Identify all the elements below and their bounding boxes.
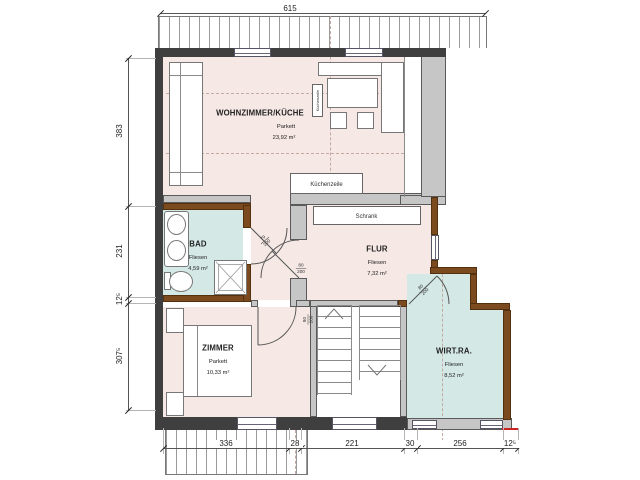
revision-mark <box>502 428 518 430</box>
window <box>431 235 439 260</box>
sofa-armrest-line <box>170 75 202 76</box>
wall <box>163 195 251 203</box>
wall-exterior-bottom <box>277 417 317 430</box>
room-floor-type: Parkett <box>255 123 318 130</box>
dim-label-left: 307⁵ <box>116 341 124 371</box>
window <box>234 48 271 57</box>
room-floor-type: Parkett <box>198 358 239 365</box>
dim-label-top-total: 615 <box>272 5 308 13</box>
schrank-label: Schrank <box>356 212 378 219</box>
room-floor-type: Fliesen <box>176 254 221 261</box>
roof-slope-dashed-line <box>295 430 296 474</box>
room-floor-type: Fliesen <box>357 259 398 266</box>
dim-extension <box>126 410 156 411</box>
balcony-railing <box>165 430 308 475</box>
window <box>480 420 503 429</box>
wall <box>400 300 407 417</box>
room-label-wohnzimmer: WOHNZIMMER/KÜCHE Parkett 23,92 m² <box>185 108 335 143</box>
door-height: 200 <box>296 269 306 274</box>
nightstand <box>166 392 184 416</box>
wall-flur-right <box>431 197 438 235</box>
wall-wirtschaftsraum-right <box>503 310 511 420</box>
wall-exterior-top <box>155 48 234 57</box>
window <box>412 420 437 429</box>
wall <box>251 300 258 307</box>
wall-wirtschaftsraum-step <box>470 303 510 310</box>
wall-wirtschaftsraum-top <box>430 267 477 274</box>
dim-label-bottom: 30 <box>402 440 418 448</box>
window <box>332 417 377 430</box>
dining-table <box>327 78 378 108</box>
kuechenzeile-box: Küchenzeile <box>290 173 363 194</box>
wall-exterior-top <box>383 48 446 57</box>
wall-bad-top <box>163 203 251 210</box>
dim-extension <box>126 206 156 207</box>
dim-label-bottom: 12⁵ <box>498 440 522 448</box>
dim-line-top <box>160 13 486 14</box>
wall <box>290 205 307 240</box>
door-size-zimmer: 80 200 <box>302 314 313 324</box>
schrank-box: Schrank <box>313 206 421 225</box>
kuechenzeile-label: Küchenzeile <box>310 180 342 187</box>
window <box>345 48 383 57</box>
room-name: ZIMMER <box>193 344 243 354</box>
wall-bad-bottom <box>163 295 251 302</box>
stair-flight-right <box>359 305 401 380</box>
room-name: WIRT.RA. <box>429 347 479 357</box>
dim-label-bottom: 256 <box>440 440 480 448</box>
door-height: 200 <box>308 314 313 324</box>
room-area: 4,59 m² <box>176 265 221 272</box>
wall-bad-right <box>243 205 251 228</box>
wall-knee-right <box>421 48 446 197</box>
room-label-wirtschaftsraum: WIRT.RA. Fliesen 8,52 m² <box>422 346 486 381</box>
sofa-back-line <box>180 63 181 185</box>
wall-exterior-bottom <box>317 417 332 430</box>
room-name: FLUR <box>352 245 402 255</box>
roof-hatch-top <box>158 16 487 48</box>
floor-plan: Schrank Küchenzeile Küchenzeile <box>0 0 640 480</box>
vestibule-opening-floor <box>251 195 290 205</box>
room-name: WOHNZIMMER/KÜCHE <box>202 109 319 119</box>
dim-label-bottom: 221 <box>334 440 370 448</box>
kitchen-counter <box>381 62 404 133</box>
room-area: 10,33 m² <box>198 369 239 376</box>
toilet <box>169 271 193 292</box>
dim-extension <box>163 428 164 454</box>
room-label-zimmer: ZIMMER Parkett 10,33 m² <box>186 343 250 378</box>
dim-label-bottom: 336 <box>208 440 244 448</box>
dim-extension <box>126 58 156 59</box>
dim-extension <box>126 303 156 304</box>
room-name: BAD <box>171 240 226 250</box>
dim-line-bottom <box>163 448 518 449</box>
dim-label-left: 12⁵ <box>116 284 124 314</box>
stair-flight-left <box>317 305 352 395</box>
room-area: 8,52 m² <box>434 372 475 379</box>
wall-exterior-bottom <box>377 417 407 430</box>
dim-extension <box>126 297 156 298</box>
nightstand <box>166 308 184 333</box>
room-label-bad: BAD Fliesen 4,59 m² <box>163 239 233 274</box>
chair <box>357 112 374 129</box>
wall <box>296 300 310 307</box>
dim-label-left: 231 <box>116 236 124 266</box>
room-label-flur: FLUR Fliesen 7,32 m² <box>345 244 409 279</box>
washbasin <box>167 214 186 235</box>
wall-exterior-bottom <box>155 417 237 430</box>
wall-exterior-top <box>271 48 345 57</box>
window <box>237 417 277 430</box>
sofa-armrest-line <box>170 172 202 173</box>
room-area: 23,92 m² <box>251 134 316 141</box>
dim-line-left <box>128 58 129 410</box>
dim-label-left: 383 <box>116 116 124 146</box>
dim-label-bottom: 28 <box>287 440 303 448</box>
room-floor-type: Fliesen <box>434 361 475 368</box>
door-size-flur: 80 200 <box>296 263 306 274</box>
wall-exterior-left <box>155 48 163 430</box>
knee-wall-line <box>404 57 405 197</box>
room-area: 7,32 m² <box>357 270 398 277</box>
